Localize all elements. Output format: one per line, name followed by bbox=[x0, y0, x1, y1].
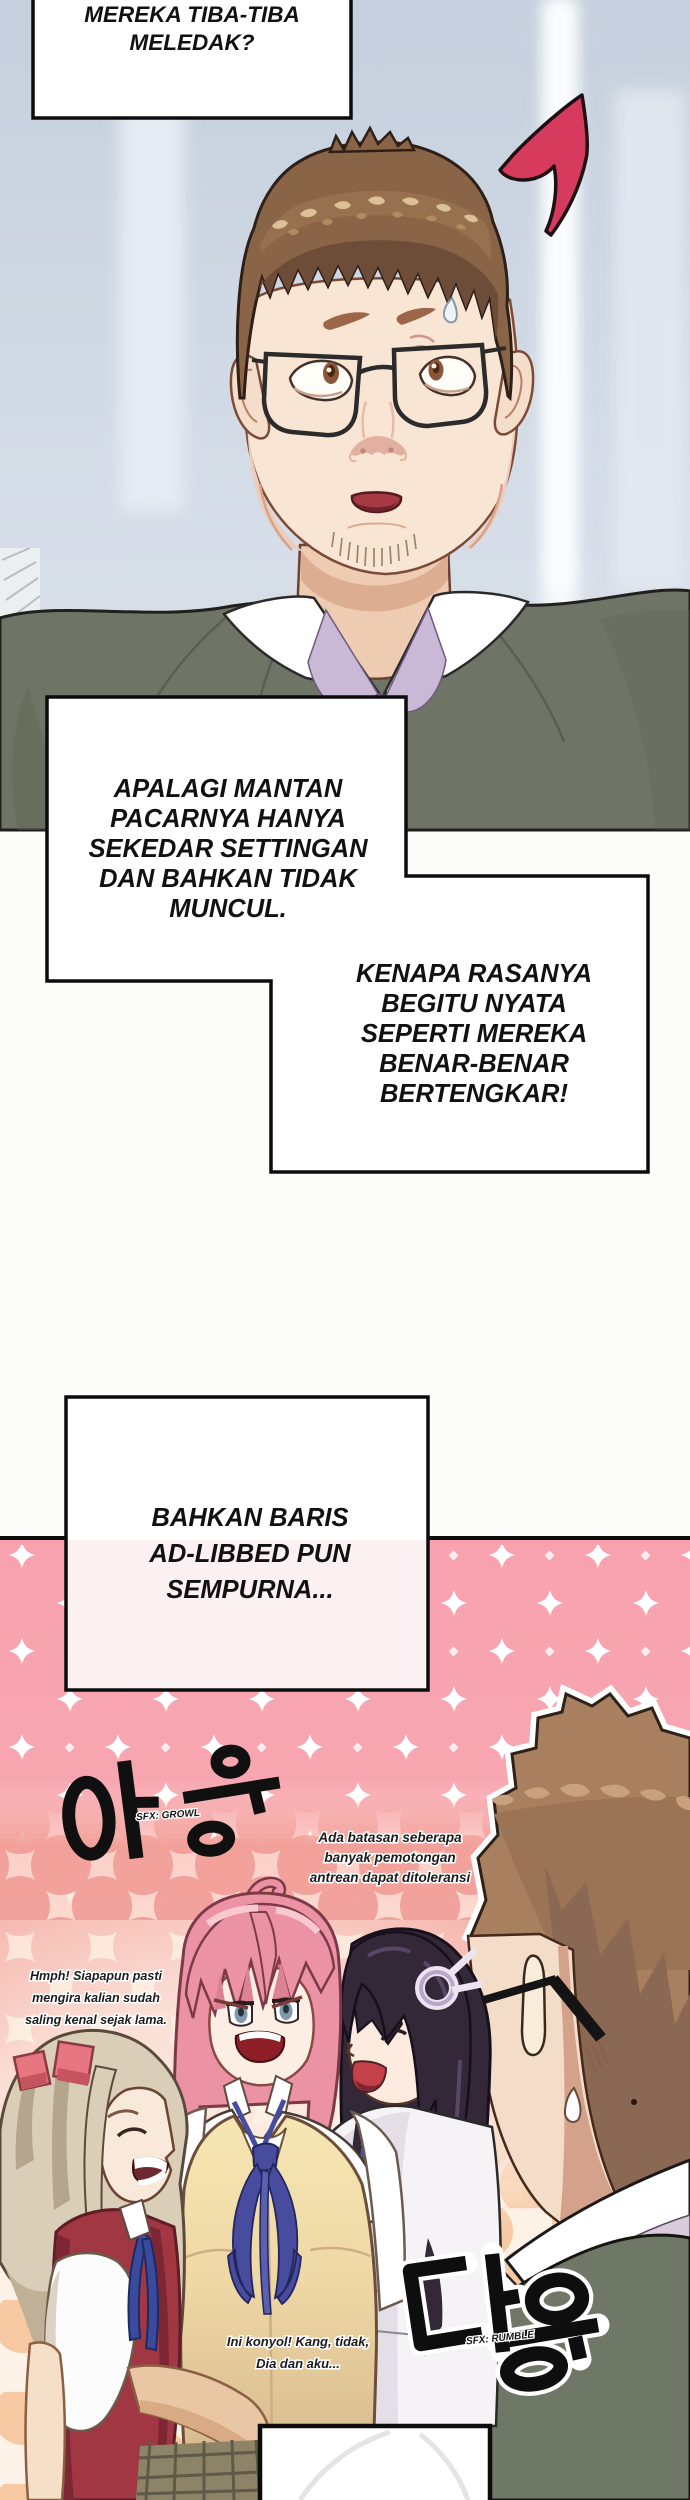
svg-text:DAN BAHKAN TIDAK: DAN BAHKAN TIDAK bbox=[99, 865, 358, 893]
svg-text:Dia dan aku...: Dia dan aku... bbox=[256, 2356, 340, 2371]
svg-text:Ini konyol! Kang, tidak,: Ini konyol! Kang, tidak, bbox=[227, 2334, 369, 2349]
svg-text:MELEDAK?: MELEDAK? bbox=[130, 30, 255, 55]
svg-text:BEGITU NYATA: BEGITU NYATA bbox=[381, 990, 567, 1018]
svg-text:KENAPA RASANYA: KENAPA RASANYA bbox=[356, 960, 592, 988]
svg-text:banyak pemotongan: banyak pemotongan bbox=[324, 1850, 455, 1865]
svg-text:MEREKA TIBA-TIBA: MEREKA TIBA-TIBA bbox=[84, 2, 299, 27]
svg-text:PACARNYA HANYA: PACARNYA HANYA bbox=[110, 805, 346, 833]
svg-text:BENAR-BENAR: BENAR-BENAR bbox=[379, 1050, 569, 1078]
svg-text:SEKEDAR SETTINGAN: SEKEDAR SETTINGAN bbox=[88, 835, 368, 863]
svg-text:BAHKAN BARIS: BAHKAN BARIS bbox=[152, 1504, 349, 1532]
svg-text:SEMPURNA...: SEMPURNA... bbox=[166, 1576, 333, 1604]
svg-text:MUNCUL.: MUNCUL. bbox=[169, 895, 287, 923]
svg-text:mengira kalian sudah: mengira kalian sudah bbox=[32, 1991, 160, 2005]
svg-text:SEPERTI MEREKA: SEPERTI MEREKA bbox=[361, 1020, 587, 1048]
svg-text:AD-LIBBED PUN: AD-LIBBED PUN bbox=[148, 1540, 351, 1568]
svg-text:antrean dapat ditoleransi: antrean dapat ditoleransi bbox=[310, 1870, 471, 1885]
svg-text:BERTENGKAR!: BERTENGKAR! bbox=[380, 1080, 568, 1108]
svg-text:saling kenal sejak lama.: saling kenal sejak lama. bbox=[25, 2013, 167, 2027]
svg-text:Hmph! Siapapun pasti: Hmph! Siapapun pasti bbox=[30, 1969, 162, 1983]
svg-text:APALAGI MANTAN: APALAGI MANTAN bbox=[113, 775, 343, 803]
svg-text:Ada batasan seberapa: Ada batasan seberapa bbox=[317, 1830, 462, 1845]
